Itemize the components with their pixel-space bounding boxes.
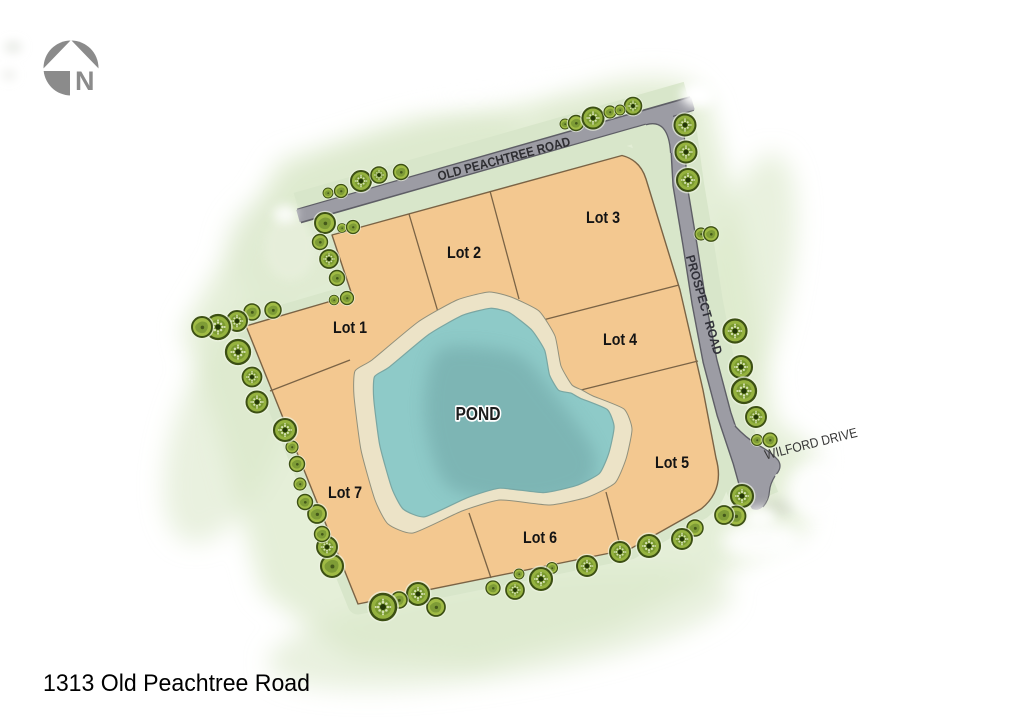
- svg-text:POND: POND: [456, 404, 501, 424]
- svg-text:Lot 1: Lot 1: [333, 318, 367, 337]
- svg-text:Lot 5: Lot 5: [655, 453, 689, 472]
- svg-text:1313 Old Peachtree Road: 1313 Old Peachtree Road: [43, 670, 310, 697]
- svg-text:Lot 6: Lot 6: [523, 528, 557, 547]
- svg-text:Lot 3: Lot 3: [586, 208, 620, 227]
- svg-text:Lot 7: Lot 7: [328, 483, 362, 502]
- svg-text:N: N: [75, 66, 95, 96]
- svg-text:Lot 4: Lot 4: [603, 330, 637, 349]
- svg-text:Lot 2: Lot 2: [447, 243, 481, 262]
